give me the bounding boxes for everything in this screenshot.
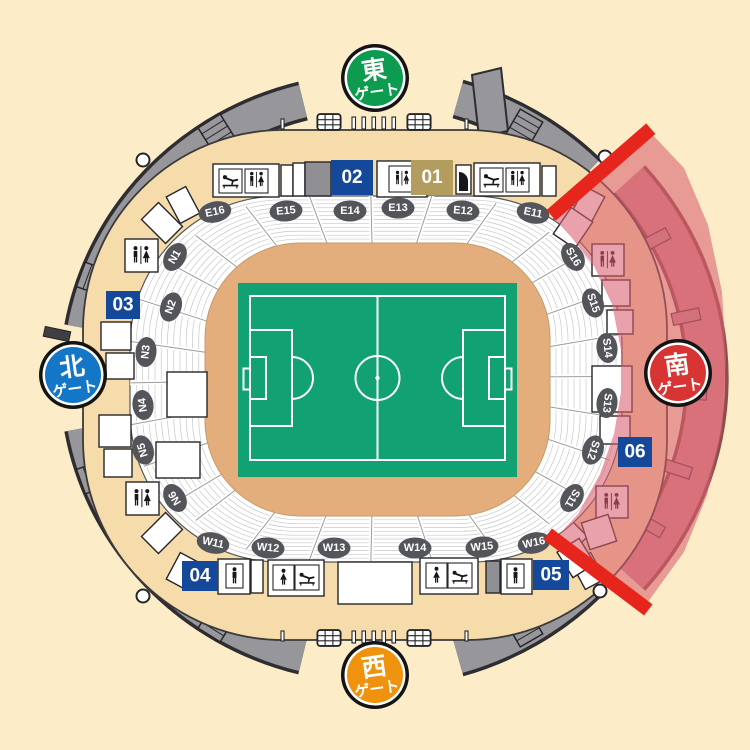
block-06-badge[interactable]: 06	[618, 437, 652, 467]
svg-text:05: 05	[540, 565, 562, 586]
gate-corridor	[338, 562, 412, 604]
gate-corridor	[167, 372, 207, 417]
svg-text:E14: E14	[340, 205, 360, 217]
svg-text:W15: W15	[470, 540, 494, 554]
svg-text:01: 01	[421, 167, 443, 188]
stadium-map-page: 02 01 03 04 05 E16 E15 E14 E13 E12 E11 N…	[0, 0, 750, 750]
utility-box	[486, 561, 500, 593]
block-01-badge[interactable]: 01	[411, 160, 453, 195]
svg-text:03: 03	[112, 295, 133, 316]
svg-text:W12: W12	[256, 541, 280, 555]
svg-text:S13: S13	[600, 393, 614, 414]
block-03-badge[interactable]: 03	[106, 291, 140, 319]
svg-text:W13: W13	[323, 542, 346, 554]
section-label-w13[interactable]: W13	[318, 538, 351, 559]
svg-text:N4: N4	[136, 396, 150, 412]
svg-text:E15: E15	[276, 204, 297, 218]
svg-text:06: 06	[624, 442, 645, 463]
ramp-slab	[472, 68, 508, 137]
svg-text:E12: E12	[453, 204, 474, 218]
section-label-e13[interactable]: E13	[382, 198, 415, 219]
east-concourse-facilities	[213, 161, 556, 197]
section-label-e14[interactable]: E14	[334, 201, 367, 222]
gate-north[interactable]: 北 ゲート	[39, 341, 107, 409]
gate-west[interactable]: 西 ゲート	[341, 641, 409, 709]
svg-text:N3: N3	[139, 344, 152, 359]
block-02-badge[interactable]: 02	[331, 160, 373, 195]
svg-text:S14: S14	[600, 338, 614, 360]
svg-text:E13: E13	[388, 202, 408, 214]
svg-text:02: 02	[341, 167, 362, 188]
utility-box	[305, 162, 331, 196]
svg-text:04: 04	[189, 566, 211, 587]
gate-corridor	[156, 442, 200, 478]
gate-east[interactable]: 東 ゲート	[341, 44, 409, 112]
section-label-w14[interactable]: W14	[399, 538, 432, 559]
block-05-badge[interactable]: 05	[533, 560, 569, 590]
gate-south[interactable]: 南 ゲート	[644, 339, 712, 407]
stadium-seating-map: 02 01 03 04 05 E16 E15 E14 E13 E12 E11 N…	[0, 0, 750, 750]
svg-text:W14: W14	[404, 542, 428, 554]
soccer-pitch	[238, 283, 517, 477]
block-04-badge[interactable]: 04	[182, 561, 218, 591]
